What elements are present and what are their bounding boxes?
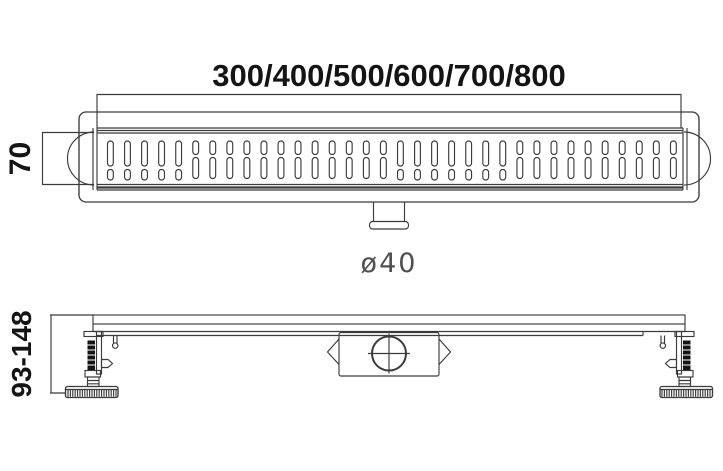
width-dimension-label: 70 — [4, 142, 37, 175]
grate-slot — [159, 141, 165, 166]
grate-slot — [619, 158, 625, 179]
length-dimension-lines — [97, 95, 681, 129]
grate-slot — [125, 141, 131, 166]
grate-slot — [517, 158, 523, 179]
grate-slot — [176, 141, 182, 166]
side-view: 93-148 — [6, 310, 713, 397]
grate-slot — [466, 141, 472, 166]
right-end-cap — [683, 128, 687, 190]
grate-slot — [176, 170, 182, 181]
grate-slot — [534, 141, 540, 155]
grate-slot — [602, 141, 608, 155]
grate-slot — [295, 141, 301, 155]
grate-slot — [142, 170, 148, 181]
grate-slot — [125, 170, 131, 181]
grate-slot — [398, 141, 404, 166]
length-dimension-label: 300/400/500/600/700/800 — [212, 58, 565, 93]
top-rails — [97, 128, 683, 133]
grate-slot — [568, 158, 574, 179]
technical-drawing-canvas: 300/400/500/600/700/800 70 — [0, 0, 723, 471]
foot-base — [66, 387, 119, 398]
grate-slot — [363, 158, 369, 179]
grate-slot — [500, 170, 506, 181]
left-end-arc — [68, 132, 95, 185]
grate-slot — [415, 170, 421, 181]
hanger-hook — [113, 336, 118, 349]
grate-slot — [483, 141, 489, 166]
foot-base-serrations — [68, 390, 116, 397]
right-foot — [660, 332, 713, 398]
grate-slot — [380, 141, 386, 155]
grate-slot — [585, 141, 591, 155]
grate-slot — [415, 141, 421, 166]
grate-slot — [278, 141, 284, 155]
top-plate — [93, 315, 685, 324]
grate-slot — [500, 141, 506, 166]
outlet-crosshair — [368, 334, 410, 374]
grate-slot — [244, 141, 250, 155]
grate-slot — [585, 158, 591, 179]
grate-slot — [483, 170, 489, 181]
length-dimension: 300/400/500/600/700/800 — [97, 58, 681, 128]
height-dimension: 93-148 — [6, 310, 93, 397]
grate-slot — [380, 158, 386, 179]
grate-slot — [653, 141, 659, 155]
grate-slot — [210, 141, 216, 155]
height-dimension-lines — [50, 315, 93, 393]
grate-slot — [398, 170, 404, 181]
left-foot — [66, 332, 119, 398]
grate-slot — [432, 141, 438, 166]
trap-left-clip — [328, 339, 340, 365]
grate-slot — [295, 158, 301, 179]
outlet-diameter-label: ø40 — [361, 248, 418, 279]
grate-slot — [108, 170, 114, 181]
grate-slot — [568, 141, 574, 155]
grate-slot — [278, 158, 284, 179]
grate-slot — [261, 158, 267, 179]
adjuster-clip — [102, 360, 113, 368]
grate-slot — [517, 141, 523, 155]
foot-bracket — [97, 332, 102, 375]
grate-slot — [108, 141, 114, 166]
grate-slot — [142, 141, 148, 166]
grate-slot — [346, 158, 352, 179]
width-dimension-lines — [43, 133, 95, 185]
grate-slot — [449, 141, 455, 166]
foot-stem — [88, 377, 100, 387]
grate-slot — [449, 170, 455, 181]
grate-slot — [193, 158, 199, 179]
outlet-stub-sides — [374, 202, 405, 222]
grate-slot — [312, 158, 318, 179]
grate-slot — [670, 158, 676, 179]
grate-slot — [244, 158, 250, 179]
foot-stem-threads — [88, 381, 100, 384]
outlet-stub-lip — [370, 222, 409, 230]
width-dimension: 70 — [4, 133, 94, 185]
grate-slot — [159, 170, 165, 181]
height-dimension-label: 93-148 — [6, 310, 37, 397]
drain-trap — [328, 333, 451, 377]
grate-slot — [466, 170, 472, 181]
grate-slot — [346, 141, 352, 155]
grate-slot — [329, 158, 335, 179]
grate-slot — [551, 158, 557, 179]
grate-slot — [227, 141, 233, 155]
grate-slot — [210, 158, 216, 179]
grate-slot — [636, 158, 642, 179]
grate-slot — [551, 141, 557, 155]
grate-slot — [670, 141, 676, 155]
outlet-stub — [370, 202, 409, 229]
grate-slot — [227, 158, 233, 179]
grate-slot — [636, 141, 642, 155]
grate-slot — [261, 141, 267, 155]
top-view: 300/400/500/600/700/800 70 — [4, 58, 711, 279]
grate-slot — [619, 141, 625, 155]
grate-slot — [193, 141, 199, 155]
right-end-arc — [684, 132, 711, 185]
drain-dimension-drawing: 300/400/500/600/700/800 70 — [0, 0, 723, 471]
grate-slots — [108, 141, 677, 180]
grate-slot — [534, 158, 540, 179]
grate-slot — [329, 141, 335, 155]
grate-slot — [653, 158, 659, 179]
grate-slot — [432, 170, 438, 181]
trap-right-clip — [439, 339, 451, 365]
grate-slot — [363, 141, 369, 155]
grate-slot — [602, 158, 608, 179]
left-end-cap — [93, 128, 97, 190]
grate-slot — [312, 141, 318, 155]
